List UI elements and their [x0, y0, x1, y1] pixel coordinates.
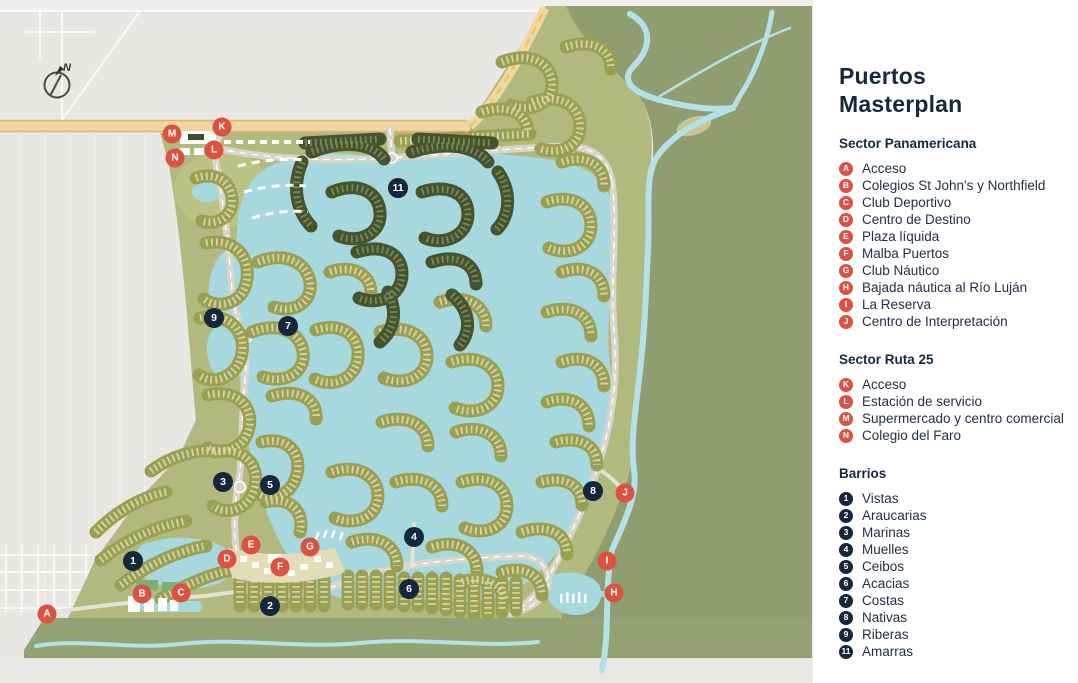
- letter-marker-icon: E: [839, 230, 853, 244]
- compass-label: N: [63, 62, 72, 74]
- map-marker-E: E: [242, 536, 261, 555]
- legend-item-label: Vistas: [862, 491, 899, 506]
- map-marker-H: H: [605, 584, 624, 603]
- number-marker-icon: 6: [839, 577, 853, 591]
- legend-item-label: Amarras: [862, 644, 913, 659]
- legend-item-K: KAcceso: [839, 376, 1066, 393]
- legend-item-L: LEstación de servicio: [839, 393, 1066, 410]
- legend-item-label: Colegios St John's y Northfield: [862, 178, 1045, 193]
- legend-item-label: Acceso: [862, 161, 906, 176]
- letter-marker-icon: G: [839, 264, 853, 278]
- letter-marker-icon: N: [839, 429, 853, 443]
- letter-marker-icon: J: [839, 315, 853, 329]
- map-marker-G: G: [301, 538, 320, 557]
- letter-marker-icon: A: [839, 162, 853, 176]
- map-marker-2: 2: [260, 596, 280, 616]
- legend-item-label: Riberas: [862, 627, 909, 642]
- map-marker-4: 4: [404, 527, 424, 547]
- number-marker-icon: 11: [839, 645, 853, 659]
- map-marker-1: 1: [123, 551, 143, 571]
- letter-marker-icon: I: [839, 298, 853, 312]
- letter-marker-icon: F: [839, 247, 853, 261]
- legend-item-label: Ceibos: [862, 559, 904, 574]
- map-marker-L: L: [205, 141, 224, 160]
- map-marker-11: 11: [388, 178, 408, 198]
- map-marker-M: M: [163, 125, 182, 144]
- legend-item-4: 4Muelles: [839, 541, 1066, 558]
- map-canvas: N ABCDEFGHIJKLMN12345678911: [0, 0, 812, 683]
- legend-item-label: Club Deportivo: [862, 195, 951, 210]
- legend-item-label: Muelles: [862, 542, 909, 557]
- legend-item-6: 6Acacias: [839, 575, 1066, 592]
- number-marker-icon: 1: [839, 492, 853, 506]
- legend-item-9: 9Riberas: [839, 626, 1066, 643]
- legend-item-label: Colegio del Faro: [862, 428, 961, 443]
- legend-item-C: CClub Deportivo: [839, 194, 1066, 211]
- legend-item-label: La Reserva: [862, 297, 931, 312]
- map-marker-9: 9: [204, 308, 224, 328]
- legend-item-label: Club Náutico: [862, 263, 939, 278]
- letter-marker-icon: H: [839, 281, 853, 295]
- map-marker-5: 5: [260, 475, 280, 495]
- letter-marker-icon: L: [839, 395, 853, 409]
- legend-item-label: Bajada náutica al Río Luján: [862, 280, 1027, 295]
- legend-item-label: Centro de Interpretación: [862, 314, 1008, 329]
- letter-marker-icon: D: [839, 213, 853, 227]
- legend-item-M: MSupermercado y centro comercial: [839, 410, 1066, 427]
- legend-item-label: Araucarias: [862, 508, 927, 523]
- map-marker-D: D: [218, 550, 237, 569]
- legend-item-label: Plaza líquida: [862, 229, 939, 244]
- legend-item-D: DCentro de Destino: [839, 211, 1066, 228]
- map-marker-6: 6: [399, 579, 419, 599]
- map-marker-3: 3: [213, 472, 233, 492]
- legend-item-G: GClub Náutico: [839, 262, 1066, 279]
- legend-item-8: 8Nativas: [839, 609, 1066, 626]
- legend-item-label: Acacias: [862, 576, 909, 591]
- legend-item-label: Acceso: [862, 377, 906, 392]
- legend-item-I: ILa Reserva: [839, 296, 1066, 313]
- number-marker-icon: 3: [839, 526, 853, 540]
- map-marker-A: A: [38, 605, 57, 624]
- legend-item-label: Supermercado y centro comercial: [862, 411, 1064, 426]
- page-title: Puertos Masterplan: [839, 62, 1066, 118]
- map-marker-B: B: [133, 585, 152, 604]
- legend-item-11: 11Amarras: [839, 643, 1066, 660]
- legend-item-3: 3Marinas: [839, 524, 1066, 541]
- legend-item-label: Centro de Destino: [862, 212, 971, 227]
- legend-item-F: FMalba Puertos: [839, 245, 1066, 262]
- map-marker-8: 8: [583, 481, 603, 501]
- legend-item-label: Marinas: [862, 525, 910, 540]
- legend-item-A: AAcceso: [839, 160, 1066, 177]
- map-marker-C: C: [172, 584, 191, 603]
- number-marker-icon: 7: [839, 594, 853, 608]
- letter-marker-icon: M: [839, 412, 853, 426]
- number-marker-icon: 8: [839, 611, 853, 625]
- legend-item-7: 7Costas: [839, 592, 1066, 609]
- legend-item-label: Estación de servicio: [862, 394, 982, 409]
- letter-marker-icon: C: [839, 196, 853, 210]
- legend-panel: Puertos Masterplan Sector PanamericanaAA…: [812, 0, 1078, 683]
- letter-marker-icon: K: [839, 378, 853, 392]
- map-marker-K: K: [213, 118, 232, 137]
- legend-item-E: EPlaza líquida: [839, 228, 1066, 245]
- legend-item-H: HBajada náutica al Río Luján: [839, 279, 1066, 296]
- map-marker-I: I: [598, 552, 617, 571]
- letter-marker-icon: B: [839, 179, 853, 193]
- puertos-masterplan-screenshot: N ABCDEFGHIJKLMN12345678911 Puertos Mast…: [0, 0, 1078, 683]
- number-marker-icon: 5: [839, 560, 853, 574]
- section-heading: Barrios: [839, 466, 1066, 481]
- legend-item-label: Costas: [862, 593, 904, 608]
- number-marker-icon: 9: [839, 628, 853, 642]
- map-marker-7: 7: [278, 316, 298, 336]
- legend-item-5: 5Ceibos: [839, 558, 1066, 575]
- map-marker-F: F: [271, 558, 290, 577]
- section-heading: Sector Ruta 25: [839, 352, 1066, 367]
- legend-item-J: JCentro de Interpretación: [839, 313, 1066, 330]
- number-marker-icon: 4: [839, 543, 853, 557]
- section-heading: Sector Panamericana: [839, 136, 1066, 151]
- legend-item-label: Nativas: [862, 610, 907, 625]
- map-marker-J: J: [616, 484, 635, 503]
- map-marker-N: N: [166, 149, 185, 168]
- legend-sections: Sector PanamericanaAAccesoBColegios St J…: [839, 136, 1066, 660]
- legend-item-B: BColegios St John's y Northfield: [839, 177, 1066, 194]
- legend-item-1: 1Vistas: [839, 490, 1066, 507]
- legend-item-label: Malba Puertos: [862, 246, 949, 261]
- number-marker-icon: 2: [839, 509, 853, 523]
- legend-item-N: NColegio del Faro: [839, 427, 1066, 444]
- legend-item-2: 2Araucarias: [839, 507, 1066, 524]
